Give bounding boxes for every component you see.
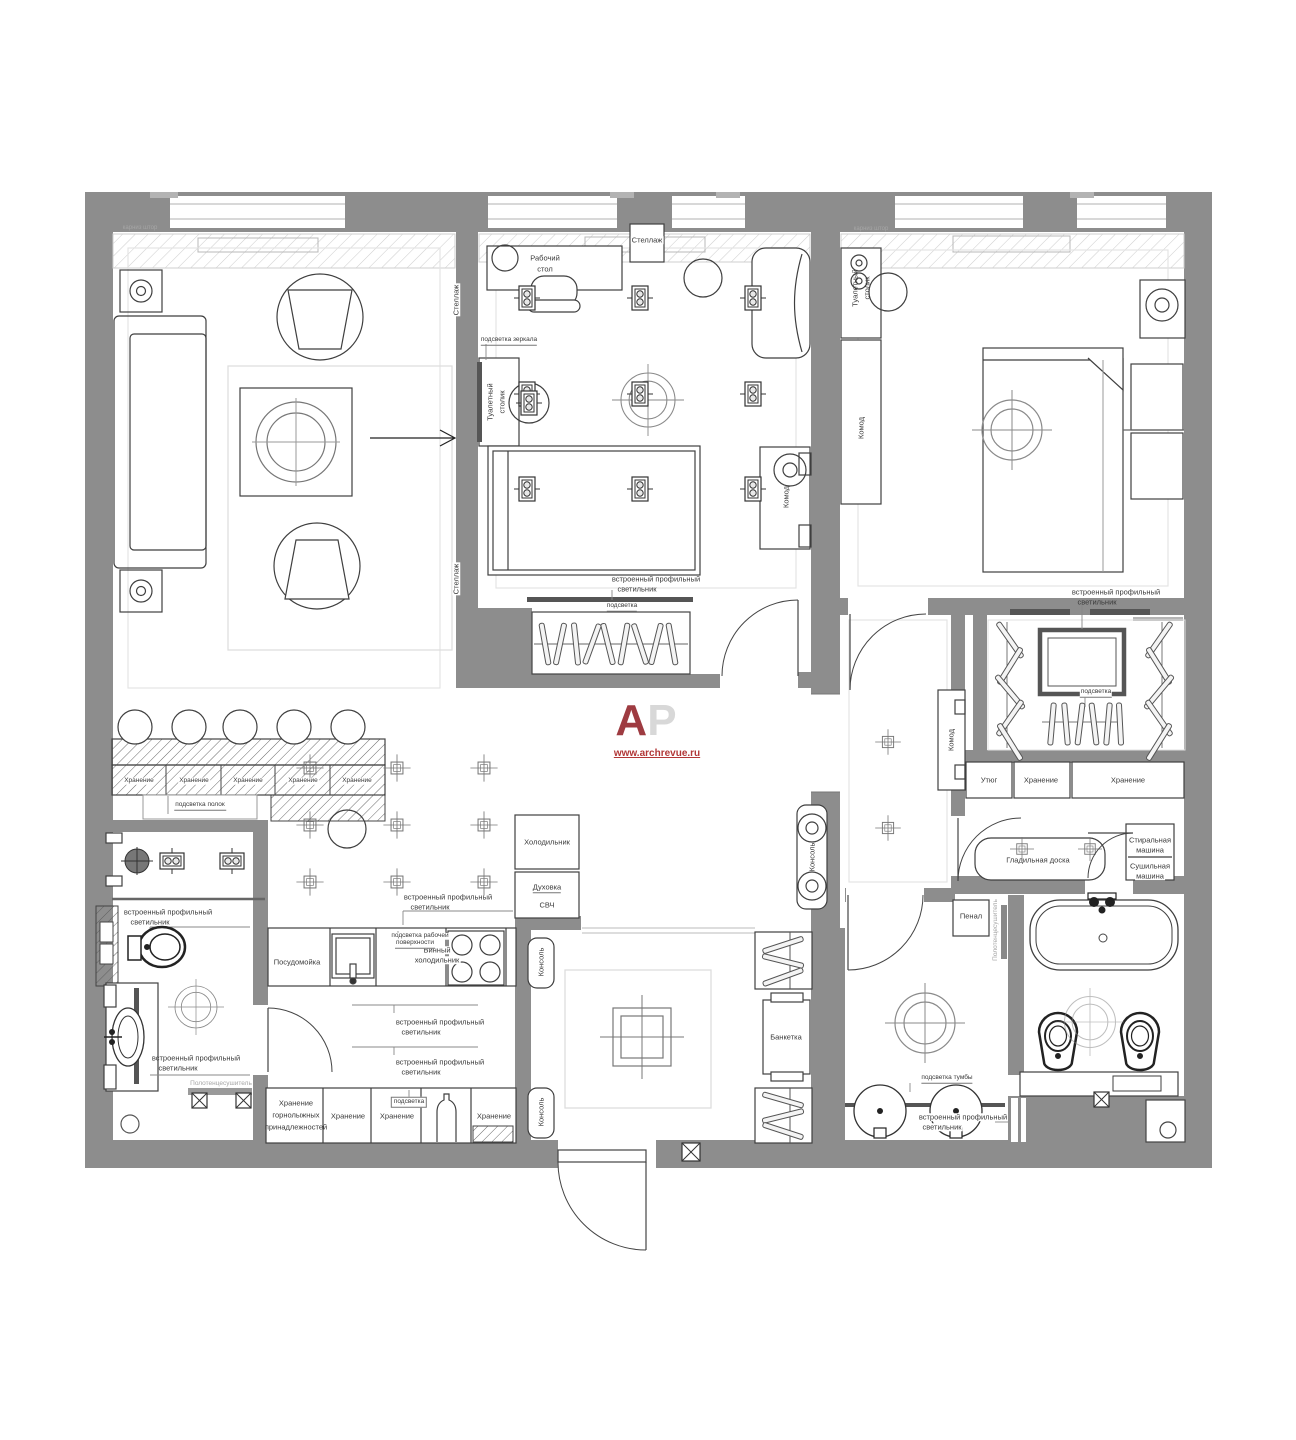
label-profile-light-dressing-2: светильник — [1077, 598, 1116, 606]
label-profile-light-hall-2b: светильник — [401, 1068, 440, 1076]
label-drying-machine-2: машина — [1135, 872, 1165, 880]
ap-logo-letter-p: P — [647, 696, 676, 745]
label-storage-kitchen-2: Хранение — [178, 778, 210, 785]
label-vanity-light: подсветка тумбы — [921, 1075, 972, 1084]
label-profile-light-guestbath-bot-2: светильник — [158, 1064, 197, 1072]
label-chest-corridor: Комод — [947, 729, 955, 751]
label-chest-master: Комод — [857, 417, 865, 439]
label-profile-light-hall-1b: светильник — [401, 1028, 440, 1036]
ap-logo: AP — [615, 699, 676, 743]
label-curtain-rail-left: карниз штор — [123, 225, 158, 231]
label-towel-rail-guestbath: Полотенцесушитель — [190, 1081, 252, 1088]
label-shelf-left-lower: Стеллаж — [452, 563, 460, 596]
label-iron: Утюг — [981, 776, 998, 784]
label-curtain-rail-right: карниз штор — [854, 226, 889, 232]
label-storage-kitchen-4: Хранение — [287, 778, 319, 785]
label-profile-light-kitchen-2: светильник — [410, 903, 449, 911]
label-shelves-light: подсветка полок — [174, 802, 226, 811]
label-wine-fridge-2: холодильник — [414, 956, 461, 964]
label-worktop-light-2: поверхности — [395, 940, 435, 949]
label-dressing-table-master-1: Туалетный — [851, 269, 859, 306]
label-storage-hall-2: Хранение — [380, 1112, 414, 1120]
label-profile-light-guestbath-bot-1: встроенный профильный — [152, 1054, 240, 1062]
label-chest-child: Комод — [782, 486, 790, 508]
label-towel-rail-masterbath: Полотенцесушитель — [993, 899, 1000, 961]
label-storage-kitchen-5: Хранение — [341, 778, 373, 785]
label-ironing-board: Гладильная доска — [1006, 856, 1069, 864]
label-profile-light-child-1: встроенный профильный — [612, 575, 700, 583]
label-microwave: СВЧ — [539, 901, 554, 909]
label-washing-machine-1: Стиральная — [1128, 836, 1172, 844]
label-profile-light-kitchen-1: встроенный профильный — [404, 893, 492, 901]
label-storage-laundry-1: Хранение — [1024, 776, 1058, 784]
label-profile-light-masterbath-2: светильник — [921, 1123, 962, 1131]
label-storage-laundry-2: Хранение — [1111, 776, 1145, 784]
label-shelf-top: Стеллаж — [631, 236, 664, 244]
label-shelf-left-upper: Стеллаж — [452, 284, 460, 317]
label-ski-storage-1: Хранение — [279, 1099, 313, 1107]
label-washing-machine-2: машина — [1135, 846, 1165, 854]
label-dressing-table-child-1: Туалетный — [486, 383, 494, 420]
label-desk-line2: стол — [537, 265, 552, 273]
label-console-corridor: Консоль — [808, 843, 816, 872]
floor-plan: карниз штор карниз штор Стеллаж Стеллаж … — [0, 0, 1296, 1440]
label-console-entry-1: Консоль — [537, 948, 545, 977]
label-profile-light-masterbath-1: встроенный профильный — [918, 1113, 1008, 1121]
label-dressing-table-child-2: столик — [498, 391, 506, 414]
label-oven: Духовка — [533, 883, 561, 893]
label-ski-storage-3: принадлежностей — [265, 1123, 327, 1131]
label-storage-kitchen-3: Хранение — [232, 778, 264, 785]
label-console-entry-2: Консоль — [537, 1098, 545, 1127]
label-backlight-child: подсветка — [607, 603, 637, 612]
label-profile-light-guestbath-top-2: светильник — [130, 918, 169, 926]
label-profile-light-dressing-1: встроенный профильный — [1072, 588, 1160, 596]
label-profile-light-hall-2a: встроенный профильный — [396, 1058, 484, 1066]
label-drying-machine-1: Сушильная — [1129, 862, 1171, 870]
label-backlight-dressing: подсветка — [1080, 689, 1112, 698]
label-profile-light-child-2: светильник — [617, 585, 656, 593]
label-profile-light-hall-1a: встроенный профильный — [396, 1018, 484, 1026]
label-mirror-light: подсветка зеркала — [481, 337, 537, 346]
label-dishwasher: Посудомойка — [274, 958, 321, 966]
label-storage-kitchen-1: Хранение — [123, 778, 155, 785]
label-dressing-table-master-2: столик — [863, 277, 871, 300]
ap-logo-letter-a: A — [615, 696, 647, 745]
label-fridge: Холодильник — [524, 838, 570, 846]
label-ski-storage-2: горнолыжных — [272, 1111, 319, 1119]
label-backlight-hall: подсветка — [391, 1097, 427, 1108]
label-desk-line1: Рабочий — [530, 254, 560, 262]
label-storage-hall-1: Хранение — [331, 1112, 365, 1120]
watermark-url: www.archrevue.ru — [614, 749, 700, 759]
label-storage-hall-3: Хранение — [477, 1112, 511, 1120]
label-tall-cabinet: Пенал — [960, 912, 982, 920]
label-bench: Банкетка — [770, 1033, 802, 1041]
label-profile-light-guestbath-top-1: встроенный профильный — [124, 908, 212, 916]
